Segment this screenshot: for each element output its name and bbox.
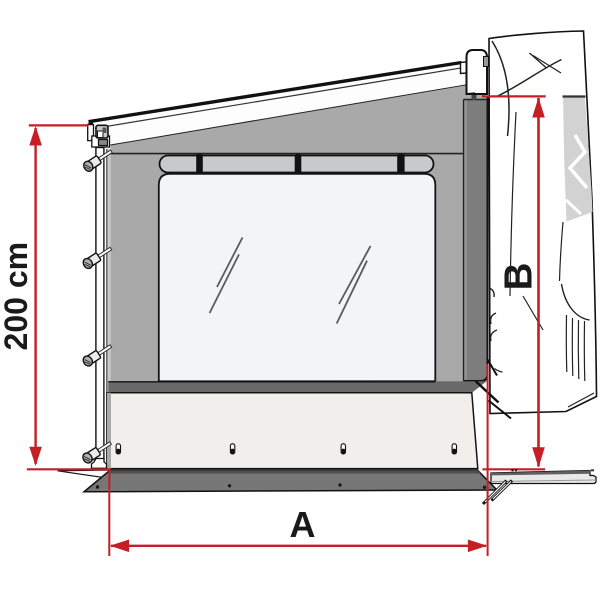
svg-text:A: A xyxy=(290,504,316,545)
svg-text:200 cm: 200 cm xyxy=(0,242,34,351)
svg-text:B: B xyxy=(498,263,541,291)
